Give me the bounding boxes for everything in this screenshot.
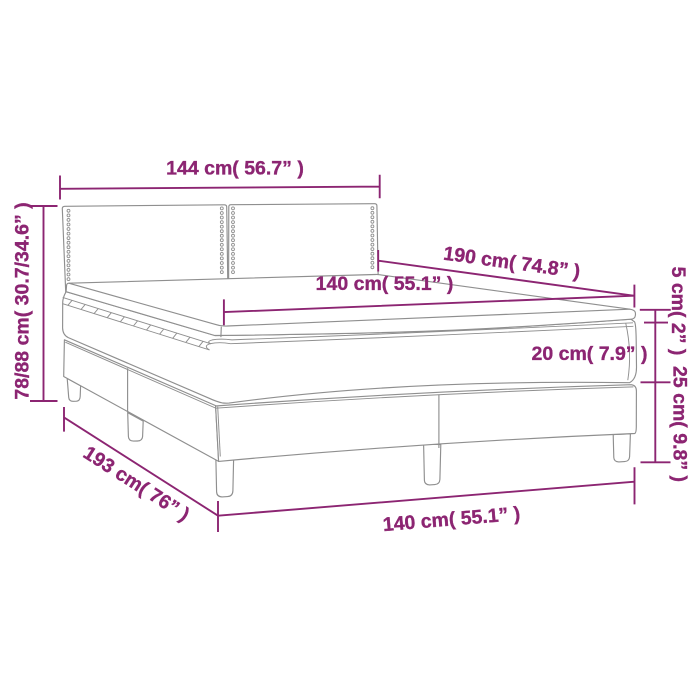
svg-text:144 cm( 56.7” ): 144 cm( 56.7” ) bbox=[166, 158, 304, 180]
svg-text:5 cm( 2” ): 5 cm( 2” ) bbox=[667, 267, 689, 356]
svg-text:20 cm( 7.9” ): 20 cm( 7.9” ) bbox=[532, 343, 648, 365]
svg-text:190 cm( 74.8” ): 190 cm( 74.8” ) bbox=[442, 243, 581, 283]
svg-text:140 cm( 55.1” ): 140 cm( 55.1” ) bbox=[316, 273, 454, 295]
svg-text:140 cm( 55.1” ): 140 cm( 55.1” ) bbox=[382, 503, 521, 536]
svg-text:193 cm( 76” ): 193 cm( 76” ) bbox=[79, 442, 193, 526]
svg-text:78/88 cm( 30.7/34.6” ): 78/88 cm( 30.7/34.6” ) bbox=[12, 202, 34, 399]
svg-text:25 cm( 9.8” ): 25 cm( 9.8” ) bbox=[669, 366, 691, 482]
